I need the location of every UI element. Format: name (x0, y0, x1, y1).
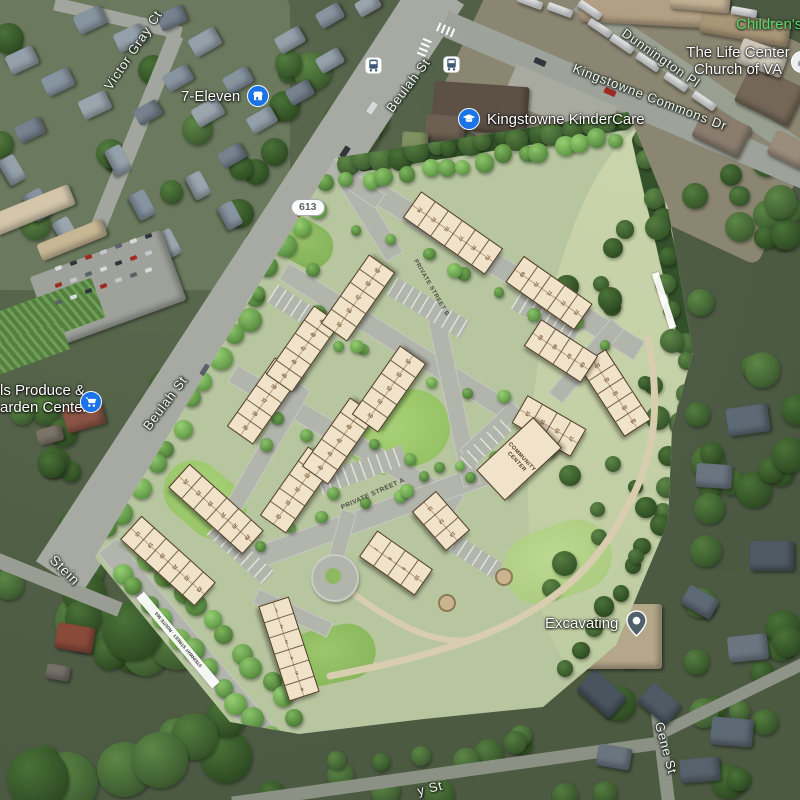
tree (694, 493, 725, 524)
tree (132, 732, 188, 788)
tree (684, 649, 710, 675)
route-shield-613: 613 (291, 199, 325, 216)
tree (275, 50, 301, 76)
building-roof (679, 756, 721, 783)
poi-excavating[interactable]: Excavating (545, 610, 648, 637)
tree (261, 138, 288, 165)
roundabout-island (325, 568, 341, 584)
excavating-label[interactable]: Excavating (545, 615, 618, 632)
seven-eleven-label[interactable]: 7-Eleven (181, 88, 240, 105)
building-roof (725, 403, 770, 437)
bus-stop-icon[interactable] (443, 56, 460, 73)
school-icon[interactable] (458, 108, 480, 130)
tree (771, 219, 800, 250)
tree (764, 185, 798, 219)
tree (687, 289, 714, 316)
tree (772, 437, 800, 473)
tree (685, 402, 710, 427)
tree (552, 783, 577, 800)
tree (745, 352, 780, 387)
building-roof (695, 463, 733, 489)
tree (682, 183, 708, 209)
poi-seven-eleven[interactable]: 7-Eleven (181, 85, 269, 107)
tree (727, 768, 750, 791)
church-poi-icon[interactable] (791, 51, 800, 73)
building-roof (727, 633, 769, 663)
tree (160, 180, 183, 203)
tree (752, 709, 778, 735)
produce-label-line2[interactable]: arden Center (0, 399, 77, 416)
tree (729, 186, 749, 206)
kindercare-label[interactable]: Kingstowne KinderCare (487, 111, 645, 128)
poi-produce-garden[interactable]: ls Produce & arden Center (0, 382, 77, 416)
produce-label-line1[interactable]: ls Produce & (0, 382, 77, 399)
tree (772, 626, 800, 657)
place-pin-icon[interactable] (625, 610, 648, 637)
life-center-line2[interactable]: Church of VA (684, 61, 792, 78)
poi-label-childrens[interactable]: Children's (736, 16, 800, 33)
poi-kindercare[interactable]: Kingstowne KinderCare (458, 108, 645, 130)
building-roof (710, 716, 754, 748)
tree (327, 751, 346, 770)
trail-node (496, 569, 512, 585)
map-canvas[interactable]: 1234567891011121314151617181920212223242… (0, 0, 800, 800)
tree (700, 442, 723, 465)
tree (720, 164, 742, 186)
tree (39, 451, 65, 477)
tree (593, 781, 617, 800)
trail-node (439, 595, 455, 611)
bus-stop-icon[interactable] (365, 57, 382, 74)
building-roof (750, 541, 794, 571)
store-icon[interactable] (247, 85, 269, 107)
cart-icon[interactable] (80, 391, 102, 413)
tree (7, 748, 68, 800)
poi-life-center-church[interactable]: The Life Center Church of VA (684, 44, 792, 78)
life-center-line1[interactable]: The Life Center (684, 44, 792, 61)
